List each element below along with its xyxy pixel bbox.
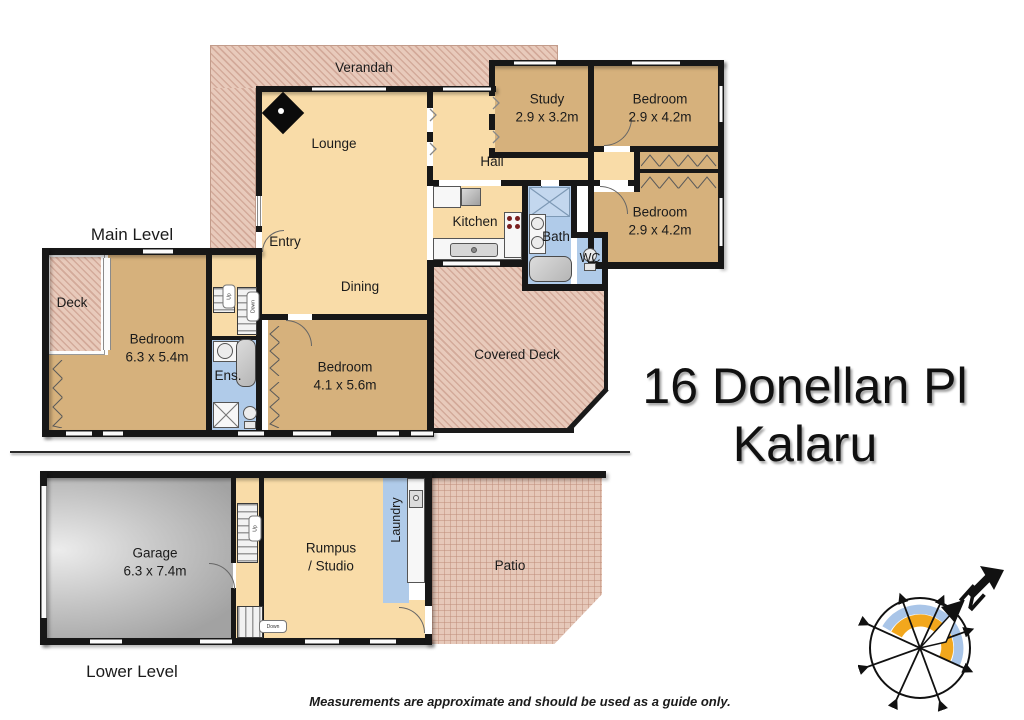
wall <box>262 314 288 320</box>
window <box>632 61 680 65</box>
covered-deck-label: Covered Deck <box>474 346 560 364</box>
bifold-door-icon <box>492 96 501 110</box>
shower-icon <box>529 187 570 217</box>
hall-label: Hall <box>480 153 503 171</box>
stairs-up-label: Up <box>223 285 236 309</box>
basin-icon <box>217 343 233 359</box>
wall <box>522 180 528 290</box>
window <box>719 198 723 246</box>
wall <box>501 180 522 186</box>
wall <box>231 478 236 563</box>
room-dims: 4.1 x 5.6m <box>313 376 376 394</box>
ensuite-label: Ens. <box>214 367 241 385</box>
fireplace-flue <box>278 108 284 114</box>
room-name: Bedroom <box>313 358 376 376</box>
entry-label: Entry <box>269 233 301 251</box>
wall <box>427 260 434 430</box>
stove-burner <box>515 224 520 229</box>
wardrobe-icon <box>51 360 64 428</box>
bedroom-main-label: Bedroom 6.3 x 5.4m <box>125 330 188 365</box>
wall <box>206 255 212 430</box>
wall <box>42 248 49 437</box>
stove-burner <box>515 216 520 221</box>
covered-deck-edge <box>434 428 574 433</box>
rumpus-label: Rumpus / Studio <box>306 539 356 574</box>
room-name: Bedroom <box>628 90 691 108</box>
wall <box>571 180 577 238</box>
window <box>293 431 331 436</box>
tap-icon <box>413 495 419 501</box>
window <box>719 86 723 122</box>
wall <box>427 132 433 142</box>
room-name2: / Studio <box>306 557 356 575</box>
verandah-label: Verandah <box>335 59 393 77</box>
garage-label: Garage 6.3 x 7.4m <box>123 544 186 579</box>
wall <box>559 180 600 186</box>
bedroom-e-label: Bedroom 2.9 x 4.2m <box>628 203 691 238</box>
room-dims: 6.3 x 7.4m <box>123 562 186 580</box>
deck-label: Deck <box>57 294 88 312</box>
bifold-door-icon <box>429 108 438 122</box>
bedroom-s-label: Bedroom 4.1 x 5.6m <box>313 358 376 393</box>
room-name: Bedroom <box>125 330 188 348</box>
window <box>377 431 399 436</box>
covered-deck-edge <box>604 288 608 390</box>
wall <box>522 284 608 291</box>
window <box>411 431 433 436</box>
window <box>305 639 339 644</box>
wall <box>628 180 640 186</box>
wall <box>256 88 262 196</box>
garage-door <box>41 486 47 618</box>
wardrobe-icon <box>268 326 281 376</box>
compass-rose: N <box>858 566 1008 718</box>
stove-burner <box>507 216 512 221</box>
address-line-1: 16 Donellan Pl <box>642 360 967 413</box>
door-opening <box>425 606 432 634</box>
bifold-door-icon <box>429 142 438 156</box>
room-name: Rumpus <box>306 539 356 557</box>
wardrobe-icon <box>641 175 717 190</box>
room-name: Garage <box>123 544 186 562</box>
window <box>312 87 386 91</box>
toilet-base <box>244 421 256 429</box>
shower-icon <box>213 402 239 428</box>
window <box>103 431 123 436</box>
kitchen-label: Kitchen <box>452 213 497 231</box>
bifold-door-icon <box>492 130 501 144</box>
main-level-label: Main Level <box>91 224 173 246</box>
room-dims: 2.9 x 4.2m <box>628 108 691 126</box>
verandah-area <box>210 88 256 250</box>
wall <box>602 238 608 290</box>
stove-burner <box>507 224 512 229</box>
wall <box>630 146 724 152</box>
corridor-area <box>594 152 634 162</box>
wall <box>312 314 434 320</box>
wall <box>256 226 262 232</box>
kitchen-appliance <box>461 188 481 206</box>
window <box>370 639 396 644</box>
toilet-icon <box>243 406 257 420</box>
window <box>238 431 264 436</box>
wall <box>489 114 495 130</box>
room-name: Bedroom <box>628 203 691 221</box>
wardrobe-icon <box>268 382 281 428</box>
room-dims: 2.9 x 4.2m <box>628 221 691 239</box>
window <box>514 61 556 65</box>
wardrobe-icon <box>641 153 717 168</box>
room-dims: 6.3 x 5.4m <box>125 348 188 366</box>
stairs-down-label: Down <box>247 292 260 322</box>
wall <box>256 255 262 430</box>
wall <box>594 146 604 152</box>
bathtub-icon <box>529 256 572 282</box>
window <box>66 431 92 436</box>
floor-plan: Verandah Covered Deck Deck <box>0 0 1024 720</box>
bedroom-ne-label: Bedroom 2.9 x 4.2m <box>628 90 691 125</box>
wall <box>588 262 724 269</box>
tap-icon <box>471 247 477 253</box>
laundry-label: Laundry <box>388 497 404 542</box>
window <box>143 249 173 254</box>
kitchen-bench <box>433 186 461 208</box>
address-line-2: Kalaru <box>733 418 878 471</box>
patio-label: Patio <box>495 557 526 575</box>
sliding-door <box>103 258 111 350</box>
stairs-up-label: Up <box>249 516 262 542</box>
dining-label: Dining <box>341 278 379 296</box>
window <box>90 639 122 644</box>
study-label: Study 2.9 x 3.2m <box>515 90 578 125</box>
door-swing-arc <box>600 186 628 214</box>
lower-level-label: Lower Level <box>86 661 178 683</box>
wall <box>427 166 433 180</box>
bath-label: Bath <box>542 228 570 246</box>
window <box>443 261 500 266</box>
window <box>257 196 261 226</box>
wall <box>231 588 236 638</box>
window <box>443 87 491 91</box>
window <box>200 639 232 644</box>
wc-label: WC <box>580 250 601 266</box>
wall <box>588 60 594 152</box>
room-name: Study <box>515 90 578 108</box>
lounge-label: Lounge <box>311 135 356 153</box>
wall <box>489 152 594 158</box>
wall <box>40 471 606 478</box>
disclaimer: Measurements are approximate and should … <box>309 694 730 709</box>
wall <box>427 92 433 108</box>
wall <box>640 169 718 173</box>
stairs-down-label: Down <box>259 620 287 633</box>
room-dims: 2.9 x 3.2m <box>515 108 578 126</box>
level-divider <box>10 451 630 453</box>
